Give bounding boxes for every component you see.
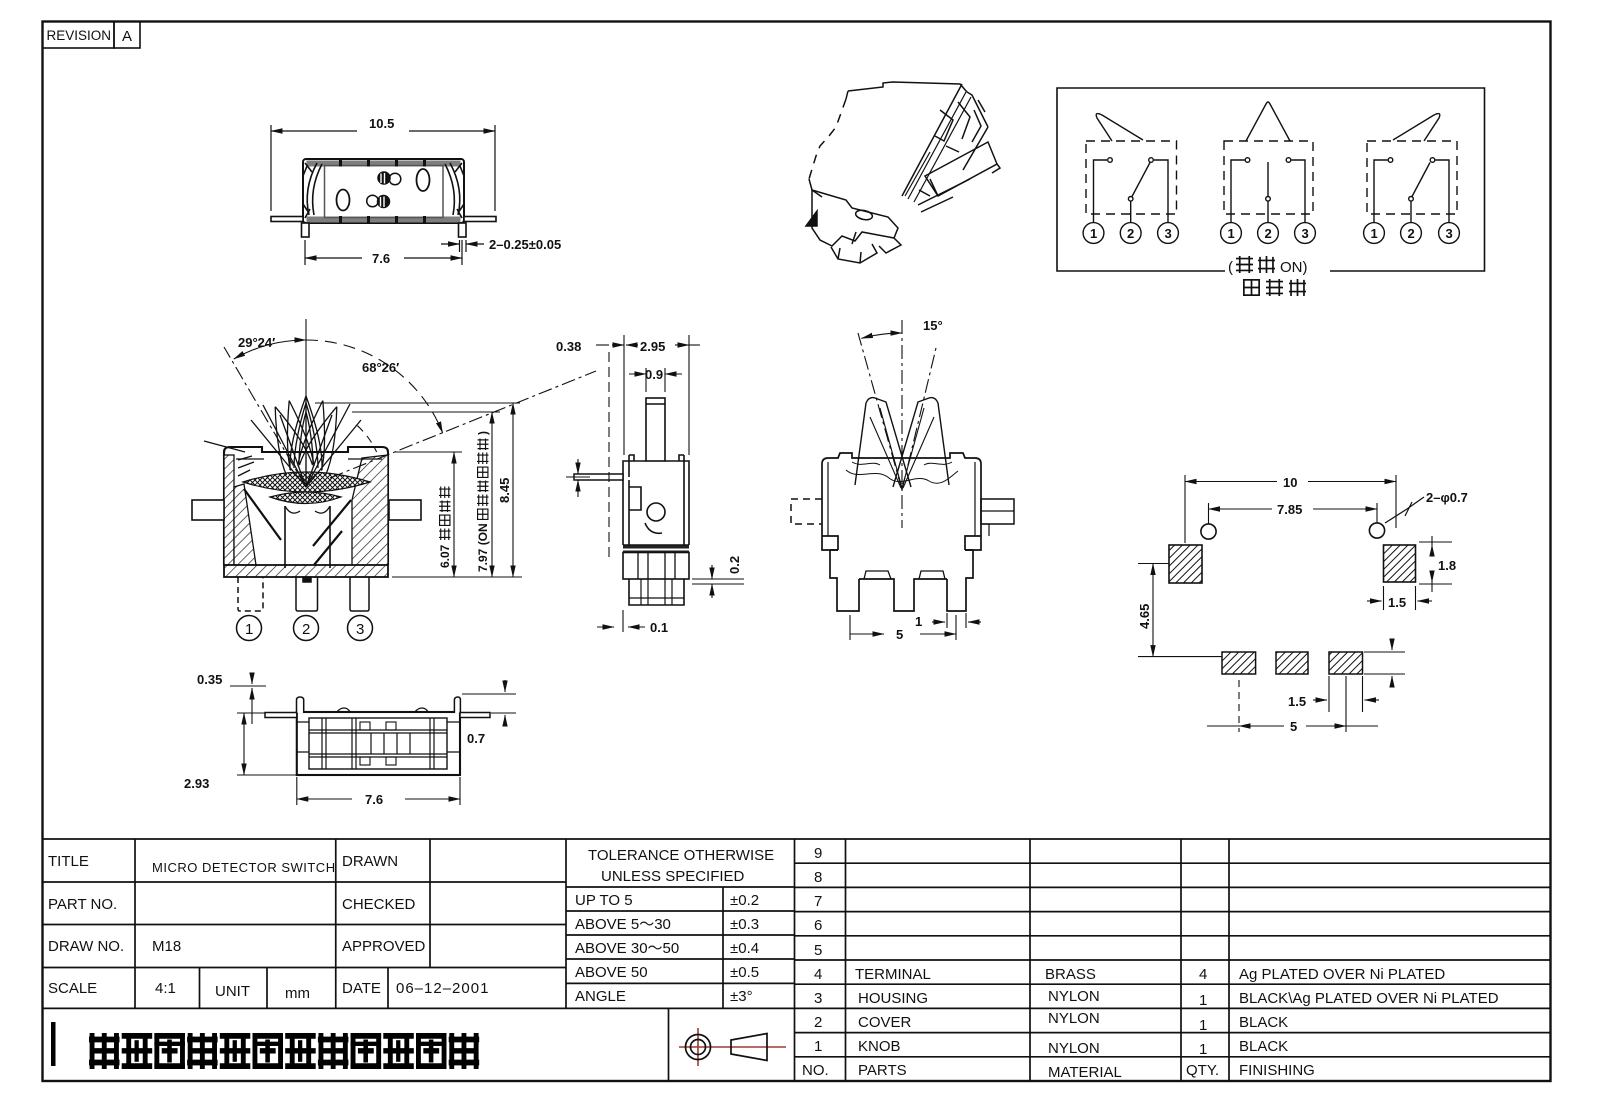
svg-text:DATE: DATE	[342, 980, 381, 997]
svg-text:3: 3	[356, 621, 364, 638]
svg-text:5: 5	[896, 627, 903, 642]
svg-text:4: 4	[1199, 966, 1207, 983]
svg-text:3: 3	[814, 990, 822, 1007]
svg-text:4: 4	[814, 966, 822, 983]
svg-text:1: 1	[1228, 226, 1235, 241]
svg-text:M18: M18	[152, 938, 181, 955]
svg-text:ANGLE: ANGLE	[575, 988, 626, 1005]
svg-text:06–12–2001: 06–12–2001	[396, 980, 489, 997]
svg-text:29°24′: 29°24′	[238, 335, 275, 350]
svg-text:1: 1	[1199, 1041, 1207, 1058]
svg-text:1: 1	[1199, 1017, 1207, 1034]
svg-text:0.35: 0.35	[197, 672, 222, 687]
svg-text:8.45: 8.45	[497, 478, 512, 503]
svg-text:6.07: 6.07	[438, 544, 452, 568]
svg-text:1: 1	[915, 614, 922, 629]
svg-text:CHECKED: CHECKED	[342, 896, 416, 913]
svg-text:2: 2	[1127, 226, 1134, 241]
svg-text:7.85: 7.85	[1277, 502, 1302, 517]
svg-text:2–0.25±0.05: 2–0.25±0.05	[489, 237, 561, 252]
svg-text:APPROVED: APPROVED	[342, 938, 426, 955]
svg-text:NO.: NO.	[802, 1062, 829, 1079]
svg-text:TOLERANCE OTHERWISE: TOLERANCE OTHERWISE	[588, 847, 774, 864]
svg-text:FINISHING: FINISHING	[1239, 1062, 1315, 1079]
svg-text:1.5: 1.5	[1388, 595, 1406, 610]
svg-text:5: 5	[1290, 719, 1297, 734]
svg-text:2: 2	[302, 621, 310, 638]
svg-text:Ag PLATED OVER Ni PLATED: Ag PLATED OVER Ni PLATED	[1239, 966, 1445, 983]
svg-text:1: 1	[1090, 226, 1097, 241]
svg-text:0.9: 0.9	[645, 367, 663, 382]
svg-text:7: 7	[814, 893, 822, 910]
svg-text:0.7: 0.7	[467, 731, 485, 746]
svg-text:BLACK\Ag PLATED OVER Ni PL: BLACK\Ag PLATED OVER Ni PLATED	[1239, 990, 1499, 1007]
svg-text:PART NO.: PART NO.	[48, 896, 117, 913]
svg-text:4.65: 4.65	[1137, 604, 1152, 629]
svg-text:±0.5: ±0.5	[730, 964, 759, 981]
svg-text:HOUSING: HOUSING	[858, 990, 928, 1007]
svg-text:10.5: 10.5	[369, 116, 394, 131]
svg-text:UNIT: UNIT	[215, 983, 250, 1000]
svg-text:COVER: COVER	[858, 1014, 912, 1031]
svg-text:UP TO 5: UP TO 5	[575, 892, 633, 909]
svg-text:15°: 15°	[923, 318, 943, 333]
svg-text:±0.3: ±0.3	[730, 916, 759, 933]
svg-text:4:1: 4:1	[155, 980, 176, 997]
svg-text:2: 2	[814, 1014, 822, 1031]
svg-text:±0.4: ±0.4	[730, 940, 759, 957]
svg-text:ON): ON)	[1280, 259, 1308, 276]
svg-text:9: 9	[814, 845, 822, 862]
svg-text:DRAWN: DRAWN	[342, 853, 398, 870]
svg-text:ABOVE 5～30: ABOVE 5～30	[575, 916, 671, 933]
svg-text:2.95: 2.95	[640, 339, 665, 354]
svg-text:REVISION: REVISION	[47, 28, 112, 43]
svg-text:0.38: 0.38	[556, 339, 581, 354]
svg-text:NYLON: NYLON	[1048, 988, 1100, 1005]
svg-text:mm: mm	[285, 985, 310, 1002]
svg-text:MATERIAL: MATERIAL	[1048, 1064, 1122, 1081]
svg-text:7.6: 7.6	[372, 251, 390, 266]
svg-text:DRAW NO.: DRAW NO.	[48, 938, 124, 955]
svg-text:2.93: 2.93	[184, 776, 209, 791]
svg-text:3: 3	[1302, 226, 1309, 241]
svg-text:±0.2: ±0.2	[730, 892, 759, 909]
svg-text:3: 3	[1446, 226, 1453, 241]
svg-text:BLACK: BLACK	[1239, 1014, 1288, 1031]
svg-text:1: 1	[1371, 226, 1378, 241]
svg-text:6: 6	[814, 917, 822, 934]
svg-text:A: A	[122, 28, 132, 45]
svg-text:8: 8	[814, 869, 822, 886]
svg-text:10: 10	[1283, 475, 1297, 490]
svg-text:QTY.: QTY.	[1186, 1062, 1219, 1079]
svg-text:BLACK: BLACK	[1239, 1038, 1288, 1055]
svg-text:±3°: ±3°	[730, 988, 753, 1005]
svg-text:3: 3	[1165, 226, 1172, 241]
svg-text:NYLON: NYLON	[1048, 1010, 1100, 1027]
svg-text:0.1: 0.1	[650, 620, 668, 635]
svg-text:2: 2	[1408, 226, 1415, 241]
svg-text:TERMINAL: TERMINAL	[855, 966, 931, 983]
svg-text:(: (	[1228, 259, 1233, 276]
svg-text:UNLESS SPECIFIED: UNLESS SPECIFIED	[601, 868, 745, 885]
svg-text:68°26′: 68°26′	[362, 360, 399, 375]
svg-text:2–φ0.7: 2–φ0.7	[1426, 490, 1468, 505]
svg-text:0.2: 0.2	[727, 556, 742, 574]
svg-text:ABOVE 30～50: ABOVE 30～50	[575, 940, 679, 957]
svg-text:1: 1	[245, 621, 253, 638]
svg-text:): )	[476, 431, 490, 435]
svg-text:ABOVE 50: ABOVE 50	[575, 964, 648, 981]
svg-text:2: 2	[1265, 226, 1272, 241]
svg-text:5: 5	[814, 942, 822, 959]
svg-text:1.5: 1.5	[1288, 694, 1306, 709]
svg-text:1: 1	[814, 1038, 822, 1055]
svg-text:7.6: 7.6	[365, 792, 383, 807]
svg-text:BRASS: BRASS	[1045, 966, 1096, 983]
svg-text:1.8: 1.8	[1438, 558, 1456, 573]
svg-text:NYLON: NYLON	[1048, 1040, 1100, 1057]
svg-text:MICRO DETECTOR SWITCH: MICRO DETECTOR SWITCH	[152, 860, 336, 875]
svg-text:7.97 (ON: 7.97 (ON	[476, 523, 490, 572]
svg-text:KNOB: KNOB	[858, 1038, 901, 1055]
svg-text:1: 1	[1199, 992, 1207, 1009]
svg-text:SCALE: SCALE	[48, 980, 97, 997]
svg-text:TITLE: TITLE	[48, 853, 89, 870]
svg-text:PARTS: PARTS	[858, 1062, 907, 1079]
